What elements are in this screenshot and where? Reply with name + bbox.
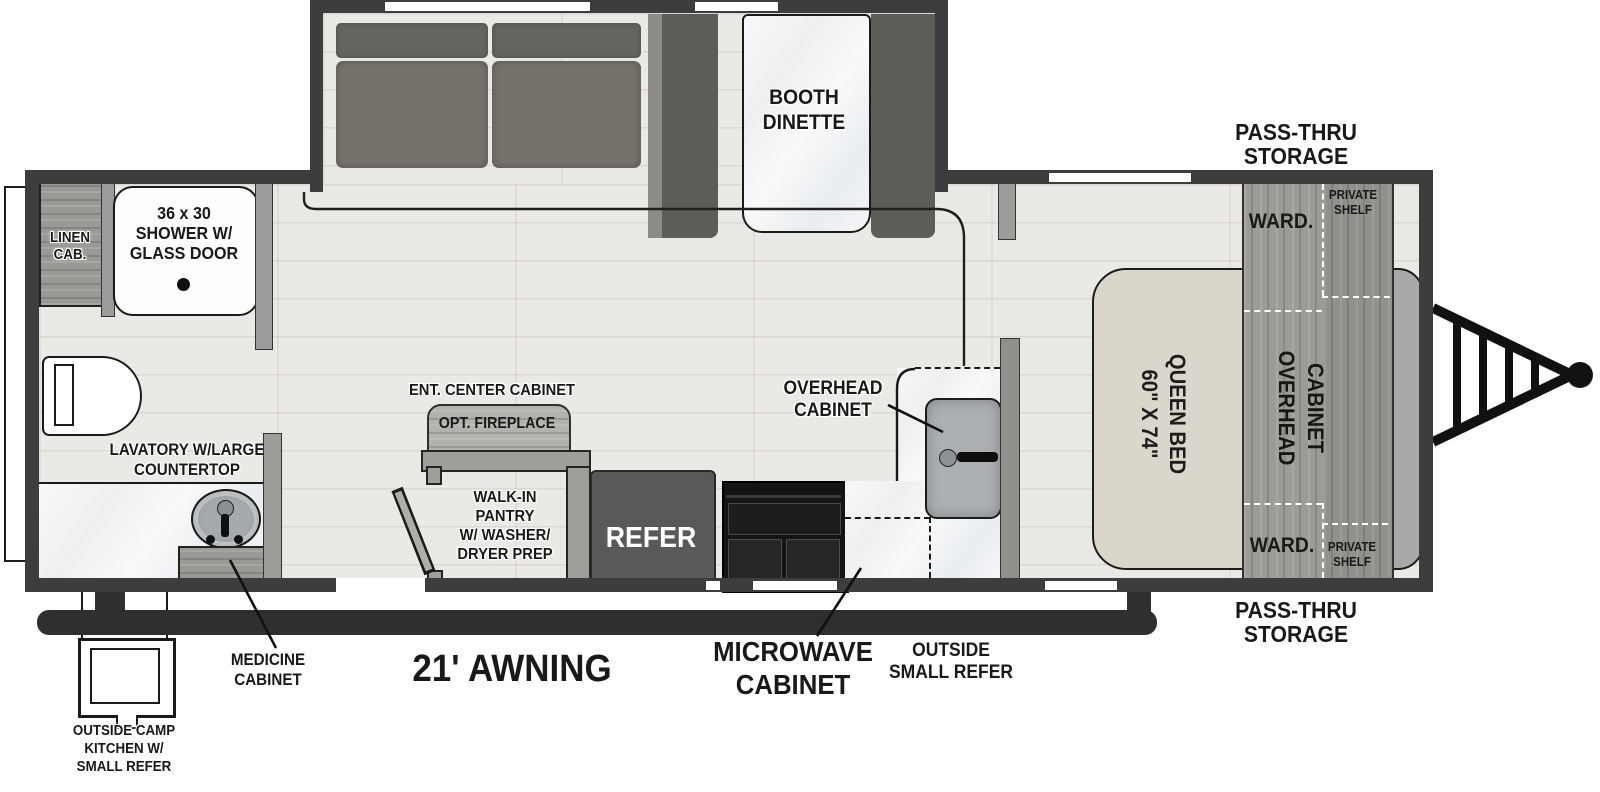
overhead-cabinet-dash-mid (845, 517, 930, 519)
private-shelf-top-dash (1322, 296, 1390, 298)
slideout-window-right (695, 2, 778, 11)
slideout-wall-right (935, 0, 948, 192)
label-medicine-cabinet: MEDICINE CABINET (231, 650, 305, 690)
label-camp-kitchen: OUTSIDE CAMP KITCHEN W/ SMALL REFER (73, 722, 175, 776)
wall-top-left (25, 170, 310, 184)
overhead-cabinet-dash-side (929, 517, 931, 578)
sofa-seat-right (492, 61, 641, 168)
slideout-wall-left (310, 0, 323, 192)
ent-center-label: ENT. CENTER CABINET (409, 382, 575, 400)
lavatory-label: LAVATORY W/LARGE COUNTERTOP (110, 441, 265, 480)
slideout-window-left (385, 2, 590, 11)
entry-door (1045, 581, 1117, 590)
toilet-tank (54, 364, 74, 426)
sofa-backrest-left (336, 23, 488, 58)
wardrobe-bottom-top-dash (1244, 503, 1322, 505)
label-microwave-cabinet: MICROWAVE CABINET (713, 635, 873, 701)
vanity-handle-right (234, 535, 243, 544)
wardrobe-top-label: WARD. (1249, 210, 1313, 234)
vanity-handle-left (206, 535, 215, 544)
bedroom-window (1049, 173, 1191, 182)
wall-left (25, 170, 39, 592)
kitchen-faucet (939, 449, 957, 467)
wardrobe-bottom-dash (1322, 503, 1324, 578)
vanity-faucet-stem (221, 514, 229, 537)
ent-center-leg (426, 466, 442, 485)
sofa-backrest-right (492, 23, 641, 58)
hitch-icon (1433, 290, 1600, 460)
wall-right (1419, 170, 1433, 592)
booth-dinette-label: BOOTH DINETTE (763, 85, 846, 135)
queen-bed-label: QUEEN BED 60" X 74" (1135, 354, 1191, 474)
label-pass-thru-bottom: PASS-THRU STORAGE (1235, 598, 1357, 646)
camp-kitchen-box-inner (90, 648, 160, 704)
fireplace-label: OPT. FIREPLACE (439, 415, 555, 432)
wardrobe-bottom-label: WARD. (1250, 534, 1314, 558)
medicine-cabinet (178, 546, 267, 582)
label-overhead-cabinet-kitchen: OVERHEAD CABINET (783, 378, 882, 422)
private-shelf-bottom-dash (1322, 523, 1388, 525)
label-awning: 21' AWNING (412, 648, 611, 691)
private-shelf-bottom-label: PRIVATE SHELF (1328, 540, 1376, 570)
dinette-bench-left (648, 14, 718, 238)
toilet (42, 356, 142, 436)
awning-rail (37, 610, 1157, 635)
wall-bottom-slot (706, 581, 720, 590)
label-pass-thru-top: PASS-THRU STORAGE (1235, 120, 1357, 168)
camp-kitchen-box (78, 638, 176, 718)
private-shelf-column (1324, 184, 1392, 578)
refrigerator-label: REFER (606, 522, 696, 554)
floorplan-diagram: BOOTH DINETTE QUEEN BED 60" X 74" CABINE… (0, 0, 1600, 792)
shower-door-track (255, 182, 273, 350)
overhead-cabinet-strip-label: CABINET OVERHEAD (1272, 351, 1330, 466)
kitchen-partition-wall (1000, 338, 1020, 580)
dinette-bench-right (871, 14, 935, 238)
ent-center-return (566, 466, 591, 582)
range-oven (722, 481, 849, 593)
shower-label: 36 x 30 SHOWER W/ GLASS DOOR (130, 203, 238, 263)
bath-entry-door-opening (336, 578, 425, 592)
overhead-cabinet-dash-top (915, 367, 1000, 369)
kitchen-faucet-handle (957, 452, 998, 462)
wall-bottom (25, 578, 1433, 592)
label-outside-small-refer: OUTSIDE SMALL REFER (889, 640, 1013, 684)
linen-cabinet-label: LINEN CAB. (50, 230, 90, 264)
sofa-seat-left (336, 61, 488, 168)
range-vent-slot (753, 581, 837, 590)
wardrobe-top-dash (1322, 184, 1324, 296)
entry-wall-stub (998, 182, 1016, 240)
shower-drain (177, 278, 190, 291)
private-shelf-top-label: PRIVATE SHELF (1329, 188, 1377, 218)
bathroom-divider-wall (263, 433, 282, 580)
wardrobe-top-bottom-dash (1244, 310, 1322, 312)
pantry-label: WALK-IN PANTRY W/ WASHER/ DRYER PREP (457, 488, 552, 564)
